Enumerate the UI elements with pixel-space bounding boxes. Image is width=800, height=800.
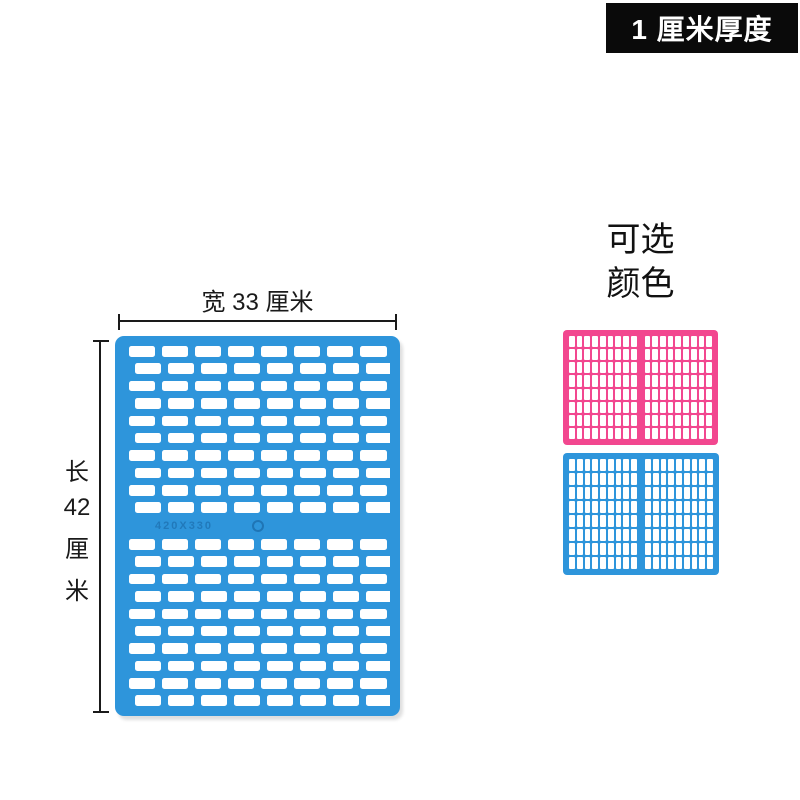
product-image: 1 厘米厚度 宽 33 厘米 长 42 厘 米 420X330 可选 颜色: [0, 0, 800, 800]
color-options-title: 可选 颜色: [563, 218, 718, 306]
panel-grid-bottom: [125, 539, 390, 706]
dimension-tick-right: [395, 314, 397, 330]
length-dimension-label: 长 42 厘 米: [55, 452, 99, 606]
color-options-title-line1: 可选: [563, 218, 718, 262]
panel-center-band: 420X330: [125, 515, 390, 537]
thickness-badge: 1 厘米厚度: [606, 3, 798, 53]
color-swatch-pink: [563, 330, 718, 445]
color-options-title-line2: 颜色: [563, 262, 718, 306]
length-label-char: 厘: [65, 529, 89, 564]
color-swatch-blue: [563, 453, 719, 575]
length-label-char: 米: [65, 571, 89, 606]
length-label-char: 42: [64, 494, 91, 522]
panel-grid-top: [125, 346, 390, 513]
grid-panel: 420X330: [115, 336, 400, 716]
width-dimension-line: [118, 320, 397, 322]
dimension-cap-bottom: [93, 711, 109, 713]
length-label-char: 长: [65, 452, 89, 487]
dimension-tick-left: [118, 314, 120, 330]
embossed-size-text: 420X330: [155, 520, 213, 532]
center-hole-icon: [252, 520, 264, 532]
width-dimension-label: 宽 33 厘米: [115, 282, 400, 317]
dimension-cap-top: [93, 340, 109, 342]
length-dimension-line: [99, 340, 101, 713]
